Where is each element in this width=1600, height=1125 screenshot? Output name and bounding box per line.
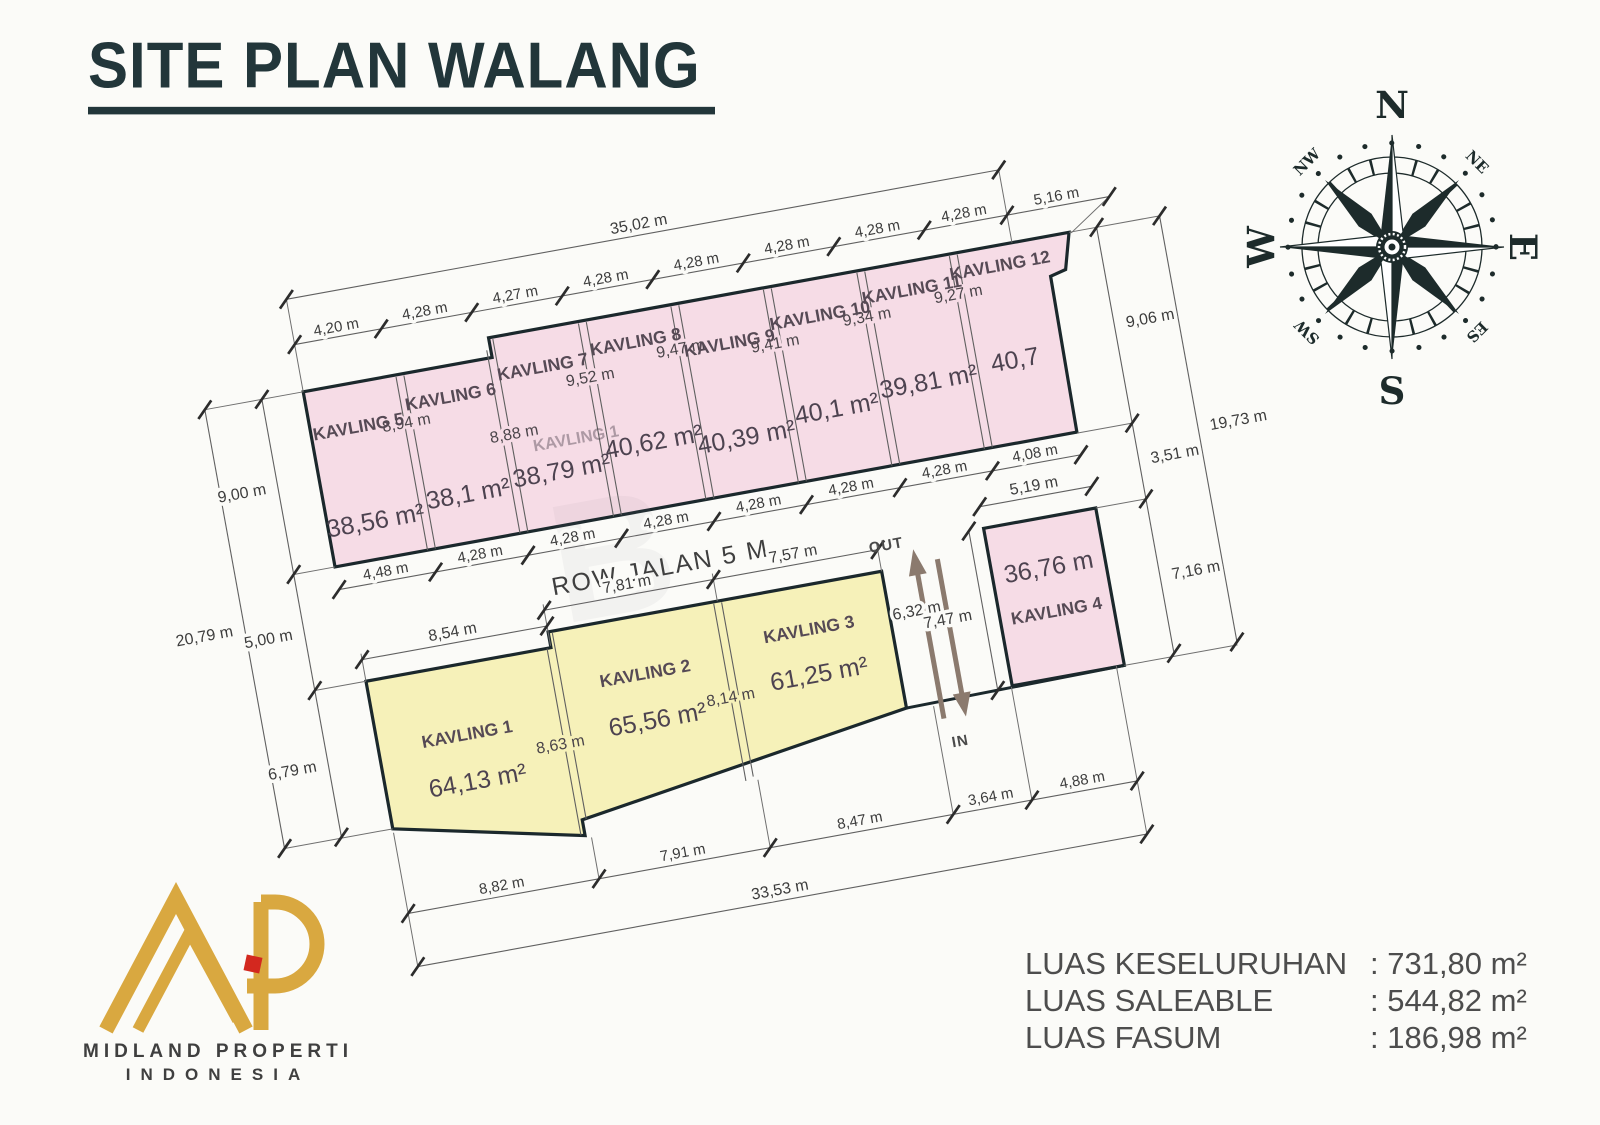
dim-bottom-overall: 33,53 m xyxy=(750,877,810,904)
dim-right-overall: 19,73 m xyxy=(1208,407,1268,434)
compass-label-south: S xyxy=(1379,369,1406,413)
compass-rose: N S W E NW NE SW ES xyxy=(1239,83,1545,413)
dim-left-segment: 9,00 m xyxy=(216,481,267,506)
summary-value-fasum: : 186,98 m² xyxy=(1370,1019,1527,1056)
summary-label-fasum: LUAS FASUM xyxy=(1025,1019,1370,1056)
kavling-4-front: 5,19 m xyxy=(1008,473,1059,498)
dim-pink-bottom-segment: 4,08 m xyxy=(1011,441,1059,466)
kavling-1-front: 8,54 m xyxy=(427,620,478,645)
page-title: SITE PLAN WALANG xyxy=(88,28,715,108)
page-title-text: SITE PLAN WALANG xyxy=(88,28,715,114)
kavling-3-front: 7,57 m xyxy=(768,542,819,567)
kavling-4-plot xyxy=(984,508,1125,686)
out-label: OUT xyxy=(868,534,905,557)
dim-right-segment: 9,06 m xyxy=(1125,306,1176,331)
dim-pink-bottom-segment: 4,28 m xyxy=(734,491,782,516)
summary-label-saleable: LUAS SALEABLE xyxy=(1025,982,1370,1019)
dim-top-segment: 4,28 m xyxy=(763,233,811,258)
summary-value-saleable: : 544,82 m² xyxy=(1370,982,1527,1019)
dim-pink-bottom-segment: 4,28 m xyxy=(920,457,968,482)
logo-company-name: MIDLAND PROPERTI xyxy=(78,1041,358,1063)
site-plan-canvas: SITE PLAN WALANG xyxy=(0,0,1600,1125)
dim-top-segment: 4,28 m xyxy=(672,249,720,274)
dim-top-segment: 5,16 m xyxy=(1032,184,1080,209)
dim-left-segment: 5,00 m xyxy=(243,627,294,652)
compass-needle-n xyxy=(1381,135,1392,247)
dim-left-overall: 20,79 m xyxy=(175,623,235,650)
compass-needle-w xyxy=(1280,247,1392,258)
dim-pink-bottom-segment: 4,48 m xyxy=(362,559,410,584)
company-logo: MIDLAND PROPERTI INDONESIA xyxy=(78,880,358,1085)
dim-pink-bottom-segment: 4,28 m xyxy=(456,542,504,567)
dim-bottom-segment: 8,47 m xyxy=(836,808,884,833)
dim-left-segment: 6,79 m xyxy=(267,759,318,784)
dim-top-segment: 4,27 m xyxy=(491,282,539,307)
summary-row: LUAS SALEABLE : 544,82 m² xyxy=(1025,982,1527,1019)
compass-needle-s xyxy=(1392,247,1403,359)
plan-rotated-group: B 35,02 m 4,20 m 4,28 m 4,27 m 4,28 m 4,… xyxy=(116,112,1338,1007)
compass-needle-n-light xyxy=(1392,135,1403,247)
compass-needle-e xyxy=(1392,236,1504,247)
logo-country: INDONESIA xyxy=(78,1065,358,1085)
dim-pink-bottom-segment: 4,28 m xyxy=(827,474,875,499)
compass-hub-center xyxy=(1389,244,1396,251)
out-arrow-head xyxy=(904,548,926,577)
logo-monogram xyxy=(98,880,338,1035)
dim-top-overall: 35,02 m xyxy=(609,211,669,238)
dim-top-segment: 4,28 m xyxy=(853,217,901,242)
dim-right-segment: 7,16 m xyxy=(1170,558,1221,583)
summary-row: LUAS KESELURUHAN : 731,80 m² xyxy=(1025,945,1527,982)
dim-top-segment: 4,20 m xyxy=(312,315,360,340)
dim-top-segment: 4,28 m xyxy=(582,266,630,291)
summary-row: LUAS FASUM : 186,98 m² xyxy=(1025,1019,1527,1056)
compass-label-east: E xyxy=(1501,233,1545,261)
dim-bottom-segment: 8,82 m xyxy=(478,873,526,898)
logo-red-square xyxy=(244,955,263,974)
dim-right-segment: 3,51 m xyxy=(1149,442,1200,467)
access-arrows xyxy=(904,544,974,722)
dim-top-segment: 4,28 m xyxy=(940,201,988,226)
area-summary: LUAS KESELURUHAN : 731,80 m² LUAS SALEAB… xyxy=(1025,945,1527,1057)
summary-label-keseluruhan: LUAS KESELURUHAN xyxy=(1025,945,1370,982)
compass-label-north: N xyxy=(1375,83,1409,127)
summary-value-keseluruhan: : 731,80 m² xyxy=(1370,945,1527,982)
dim-top-segment: 4,28 m xyxy=(401,299,449,324)
dim-bottom-segment: 4,88 m xyxy=(1058,768,1106,793)
compass-needle-s-light xyxy=(1381,247,1392,359)
dim-bottom-segment: 7,91 m xyxy=(659,840,707,865)
compass-needle-e-light xyxy=(1392,247,1504,258)
in-label: IN xyxy=(950,732,970,752)
compass-label-west: W xyxy=(1239,226,1283,269)
dim-bottom-segment: 3,64 m xyxy=(967,784,1015,809)
compass-needle-w-light xyxy=(1280,236,1392,247)
